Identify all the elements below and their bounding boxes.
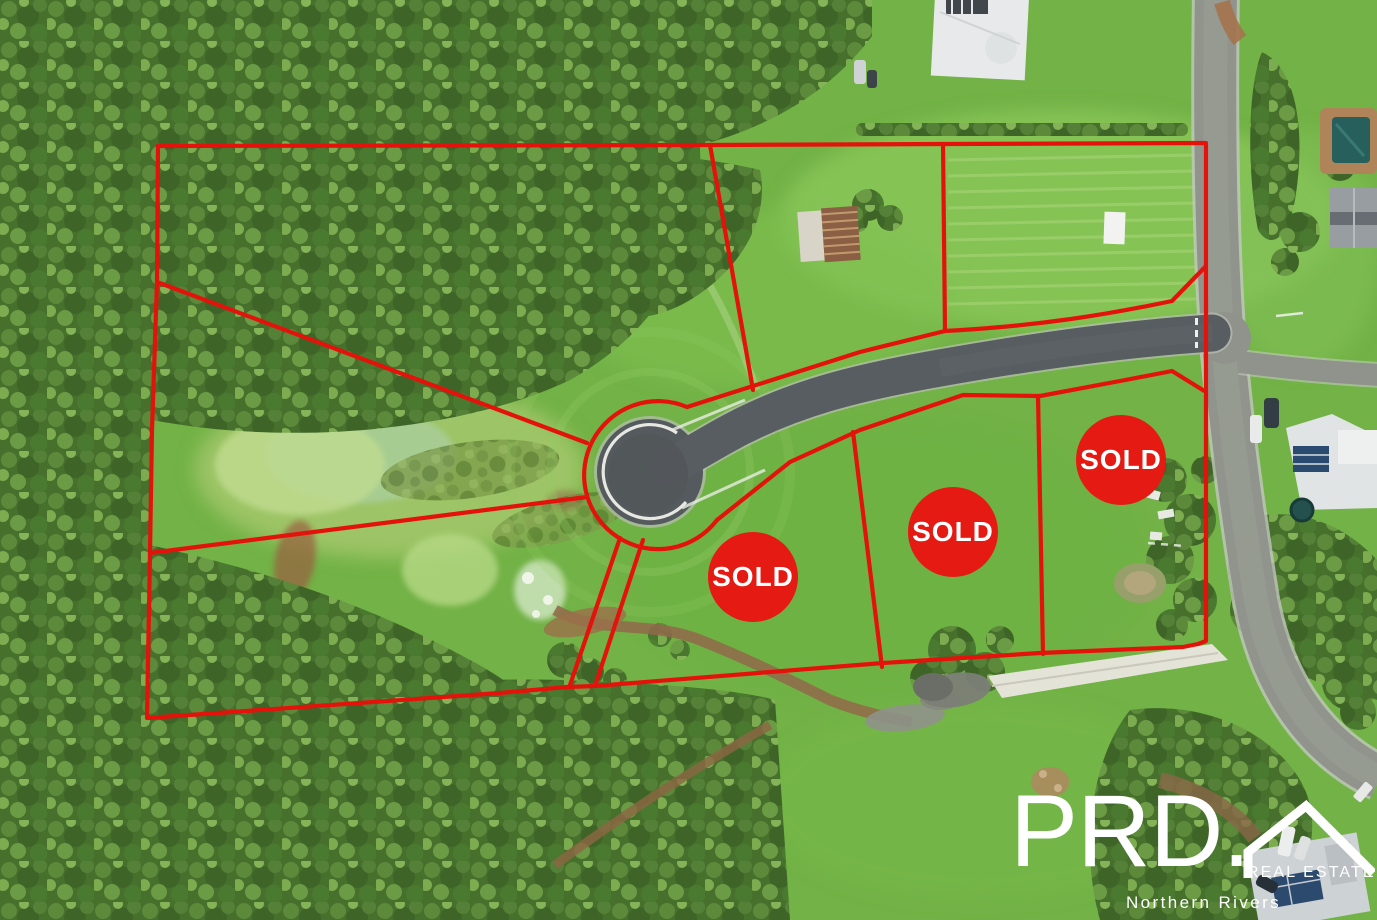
aerial-photo-layers [0,0,1377,920]
construction-shed [797,206,861,264]
sold-badge-label: SOLD [1080,444,1162,476]
site-shed-container [1103,212,1125,245]
sold-badge-label: SOLD [912,516,994,548]
aerial-photo: SOLD SOLD SOLD PRD. REAL ESTATE Northern… [0,0,1377,920]
sold-badge-2: SOLD [908,487,998,577]
sold-badge-label: SOLD [712,561,794,593]
sold-badge-3: SOLD [1076,415,1166,505]
sold-badge-1: SOLD [708,532,798,622]
lot-line-north [943,144,945,330]
neighbour-pool [1320,108,1377,174]
hedge-row [856,123,1188,136]
neighbour-shed-northeast [1330,188,1377,248]
trampoline [1291,499,1313,521]
give-way-markings [1195,318,1198,348]
